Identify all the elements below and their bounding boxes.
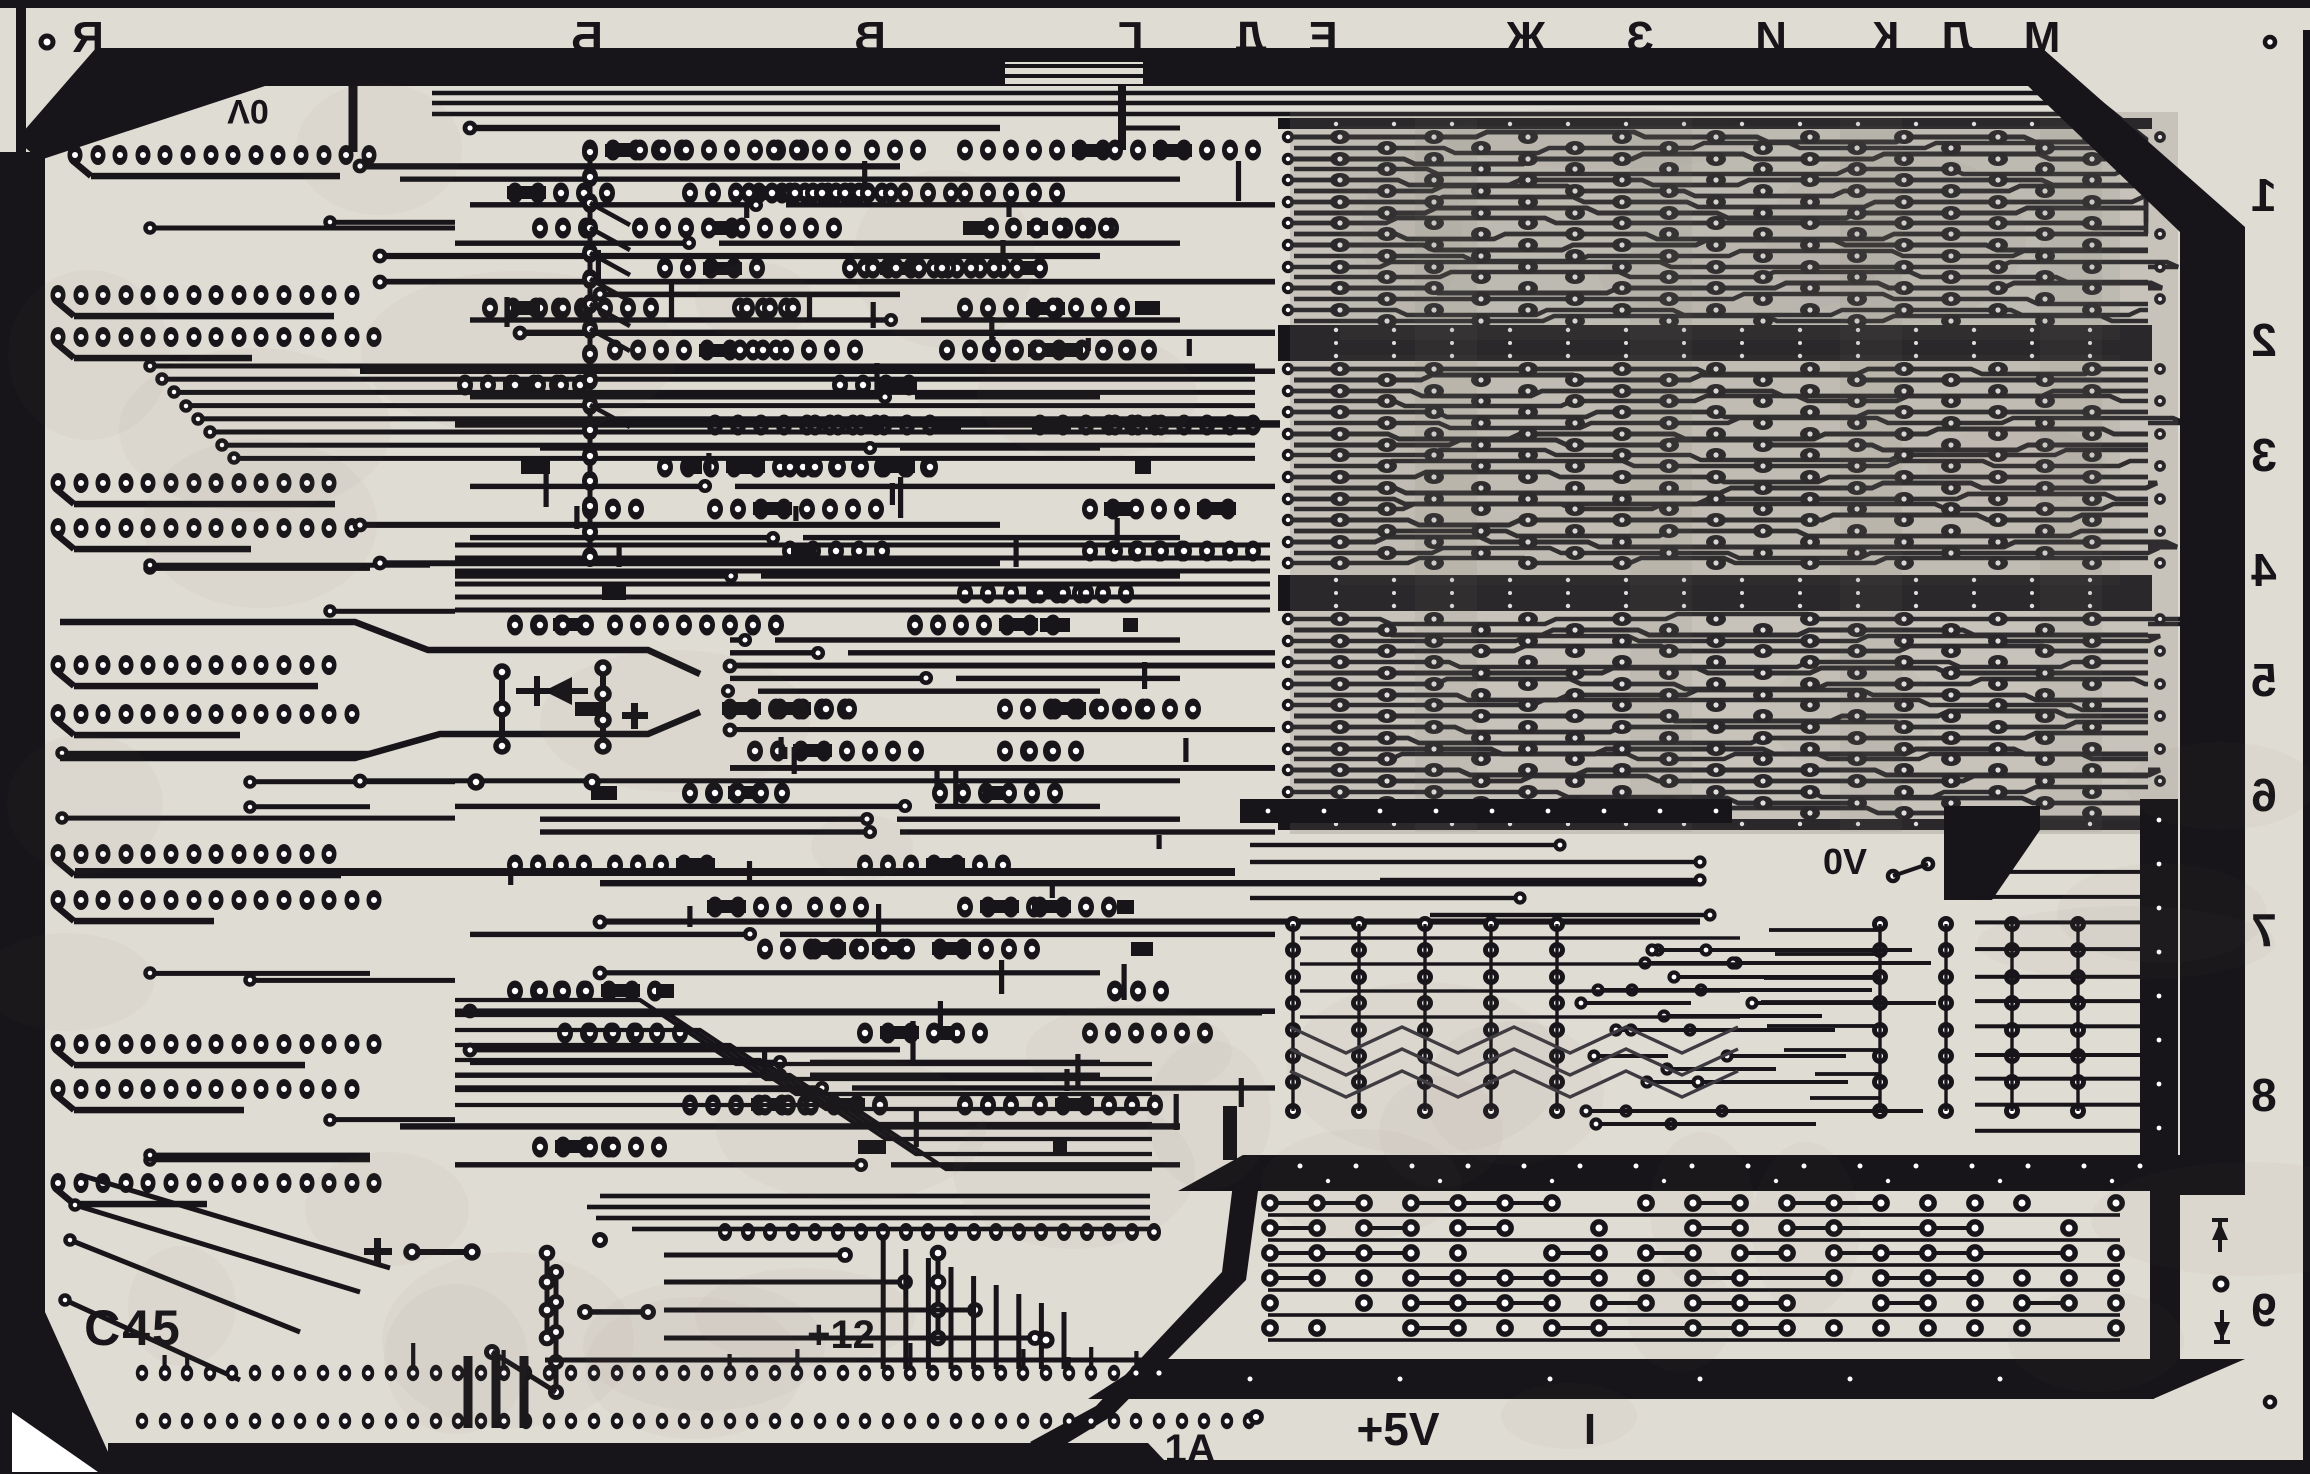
svg-text:8: 8 <box>2251 1069 2277 1121</box>
svg-text:9: 9 <box>2251 1284 2277 1336</box>
svg-text:0V: 0V <box>227 92 269 130</box>
svg-text:Е: Е <box>1308 13 1337 62</box>
svg-text:1: 1 <box>2251 169 2277 221</box>
svg-text:Ж: Ж <box>1506 13 1547 62</box>
svg-text:Л: Л <box>1942 13 1973 62</box>
svg-text:R: R <box>72 13 104 62</box>
svg-text:2: 2 <box>2251 314 2277 366</box>
svg-text:З: З <box>1626 13 1654 62</box>
svg-text:Б: Б <box>571 13 603 62</box>
svg-text:4: 4 <box>2251 544 2277 596</box>
svg-text:В: В <box>854 13 886 62</box>
svg-text:0V: 0V <box>1823 841 1867 882</box>
svg-text:Д: Д <box>1235 13 1266 62</box>
svg-text:5: 5 <box>2251 654 2277 706</box>
svg-text:1A: 1A <box>1164 1427 1215 1471</box>
svg-text:+5V: +5V <box>1356 1403 1439 1455</box>
svg-text:М: М <box>2024 13 2061 62</box>
svg-text:И: И <box>1755 13 1787 62</box>
svg-text:К: К <box>1872 13 1899 62</box>
svg-text:Г: Г <box>1118 13 1143 62</box>
svg-text:3: 3 <box>2251 429 2277 481</box>
